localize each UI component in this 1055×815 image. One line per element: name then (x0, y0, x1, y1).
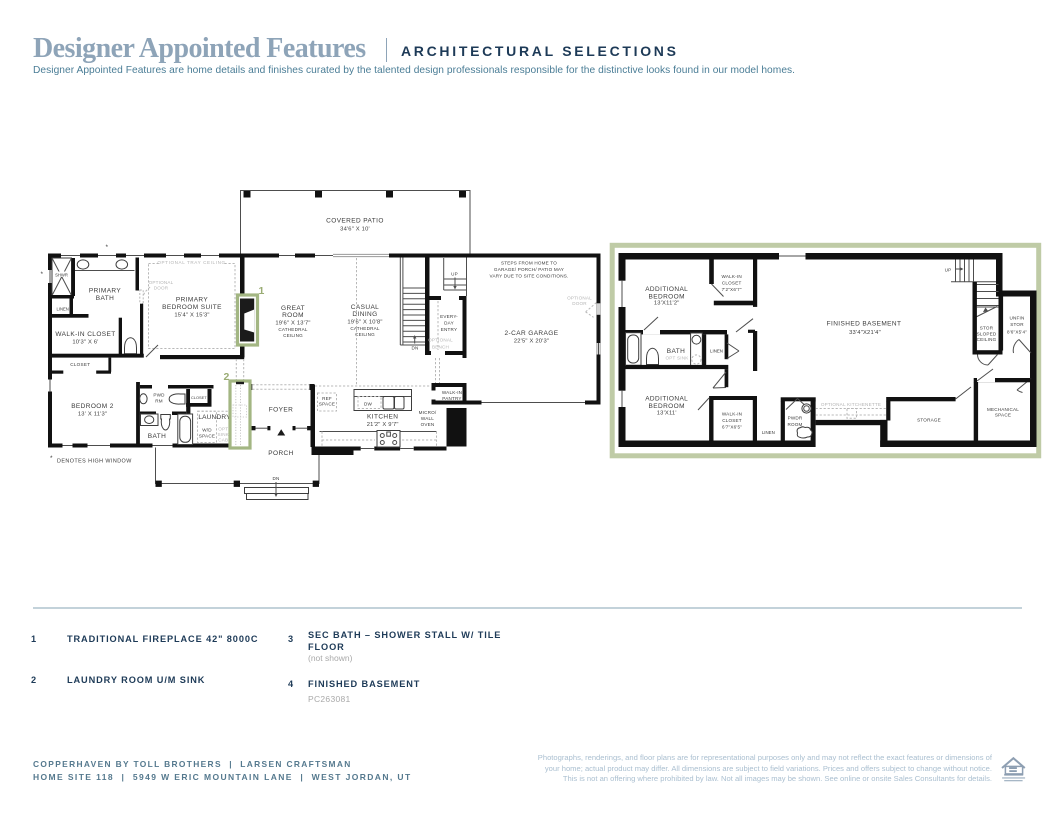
svg-text:CATHEDRAL: CATHEDRAL (350, 326, 380, 331)
svg-text:CLOSET: CLOSET (191, 395, 207, 400)
svg-text:OPT: OPT (218, 427, 228, 432)
svg-text:OPTIONAL: OPTIONAL (149, 280, 174, 285)
svg-text:SPACE: SPACE (199, 434, 215, 439)
svg-text:13'X11'2": 13'X11'2" (654, 301, 680, 307)
svg-text:PRIMARY: PRIMARY (176, 297, 209, 304)
svg-text:MECHANICAL: MECHANICAL (987, 407, 1019, 412)
svg-text:OPT SINK: OPT SINK (666, 356, 690, 361)
svg-text:ROOM: ROOM (787, 422, 802, 427)
svg-text:STORAGE: STORAGE (917, 418, 941, 423)
svg-text:19'6" X 13'7": 19'6" X 13'7" (275, 321, 310, 327)
svg-text:BATH: BATH (96, 295, 114, 302)
svg-text:8'6"X5'4": 8'6"X5'4" (1007, 330, 1027, 335)
svg-text:CEILING: CEILING (283, 333, 303, 338)
svg-text:WALK-IN: WALK-IN (442, 390, 462, 395)
svg-text:KITCHEN: KITCHEN (367, 414, 398, 421)
svg-text:VARY DUE TO SITE CONDITIONS.: VARY DUE TO SITE CONDITIONS. (490, 274, 569, 279)
svg-text:SHWR: SHWR (55, 273, 68, 278)
svg-text:FOYER: FOYER (269, 407, 293, 414)
svg-text:LINEN: LINEN (762, 430, 775, 435)
svg-text:1: 1 (259, 285, 265, 297)
svg-text:SPACE: SPACE (995, 413, 1011, 418)
svg-text:WALK-IN CLOSET: WALK-IN CLOSET (55, 331, 115, 338)
svg-text:FINISHED BASEMENT: FINISHED BASEMENT (827, 321, 902, 328)
svg-text:LAUNDRY: LAUNDRY (198, 414, 231, 421)
svg-text:MICRO/: MICRO/ (419, 410, 437, 415)
svg-text:ROOM: ROOM (282, 312, 304, 319)
svg-text:15'4" X 15'3": 15'4" X 15'3" (174, 313, 209, 319)
svg-text:2-CAR GARAGE: 2-CAR GARAGE (505, 330, 559, 337)
svg-text:13'X11': 13'X11' (657, 411, 677, 417)
svg-text:COVERED PATIO: COVERED PATIO (326, 218, 384, 225)
svg-text:PORCH: PORCH (268, 450, 293, 457)
svg-text:SPACE: SPACE (319, 402, 335, 407)
svg-text:CLOSET: CLOSET (722, 418, 742, 423)
svg-text:ADDITIONAL: ADDITIONAL (645, 286, 688, 293)
svg-text:*: * (106, 244, 109, 251)
svg-text:BEDROOM 2: BEDROOM 2 (71, 403, 114, 410)
svg-text:BENCH: BENCH (432, 345, 449, 350)
svg-text:DN: DN (272, 476, 279, 481)
svg-text:CEILING: CEILING (355, 332, 375, 337)
svg-text:UP: UP (945, 268, 952, 273)
svg-text:SLOPED: SLOPED (977, 331, 997, 336)
svg-text:6'7"X6'5": 6'7"X6'5" (722, 425, 742, 430)
svg-text:22'5" X 20'3": 22'5" X 20'3" (514, 339, 549, 345)
svg-text:SINK: SINK (218, 432, 230, 437)
svg-text:DAY: DAY (444, 321, 454, 326)
svg-text:ADDITIONAL: ADDITIONAL (645, 396, 688, 403)
svg-text:CATHEDRAL: CATHEDRAL (278, 327, 308, 332)
svg-text:BEDROOM SUITE: BEDROOM SUITE (162, 304, 222, 311)
svg-text:PRIMARY: PRIMARY (89, 288, 122, 295)
svg-text:WALK-IN: WALK-IN (722, 274, 742, 279)
svg-text:DENOTES HIGH WINDOW: DENOTES HIGH WINDOW (57, 459, 132, 465)
svg-text:OPTIONAL: OPTIONAL (567, 296, 592, 301)
svg-text:OVEN: OVEN (421, 422, 435, 427)
svg-text:DOOR: DOOR (154, 286, 169, 291)
svg-text:10'3" X 6': 10'3" X 6' (72, 340, 98, 346)
svg-text:21'2" X 9'7": 21'2" X 9'7" (367, 422, 399, 428)
svg-text:2: 2 (224, 371, 230, 383)
svg-text:GARAGE/ PORCH/ PATIO MAY: GARAGE/ PORCH/ PATIO MAY (494, 267, 564, 272)
svg-text:7'2"X6'7": 7'2"X6'7" (722, 287, 742, 292)
svg-text:BATH: BATH (148, 433, 166, 440)
svg-text:CLOSET: CLOSET (70, 362, 90, 367)
svg-text:34'6" X 10': 34'6" X 10' (340, 227, 370, 233)
svg-text:CEILING: CEILING (977, 337, 997, 342)
svg-text:EVERY-: EVERY- (440, 314, 458, 319)
svg-text:REF: REF (322, 396, 332, 401)
svg-text:OPTIONAL KITCHENETTE: OPTIONAL KITCHENETTE (821, 402, 881, 407)
svg-text:OPTIONAL TRAY CEILING: OPTIONAL TRAY CEILING (157, 260, 225, 265)
svg-text:STOR: STOR (1010, 322, 1024, 327)
svg-text:STOR: STOR (980, 326, 994, 331)
svg-text:ENTRY: ENTRY (441, 327, 458, 332)
svg-text:OPTIONAL: OPTIONAL (428, 338, 453, 343)
svg-text:WALL: WALL (421, 416, 434, 421)
svg-text:33'4"X21'4": 33'4"X21'4" (849, 330, 881, 336)
svg-text:UNFIN: UNFIN (1009, 316, 1024, 321)
svg-text:PANTRY: PANTRY (442, 396, 461, 401)
svg-text:W/D: W/D (202, 428, 212, 433)
svg-text:WALK-IN: WALK-IN (722, 412, 742, 417)
svg-text:UP: UP (451, 272, 458, 277)
svg-text:13' X 11'3": 13' X 11'3" (78, 412, 107, 418)
svg-text:BEDROOM: BEDROOM (649, 403, 685, 410)
svg-text:CASUAL: CASUAL (351, 304, 379, 311)
svg-text:19'6" X 10'8": 19'6" X 10'8" (347, 320, 382, 326)
svg-text:GREAT: GREAT (281, 305, 305, 312)
svg-text:*: * (41, 271, 44, 278)
svg-text:PWDR: PWDR (788, 416, 803, 421)
svg-text:DOOR: DOOR (572, 301, 587, 306)
svg-text:STEPS FROM HOME TO: STEPS FROM HOME TO (501, 261, 557, 266)
svg-text:CAB: CAB (218, 438, 228, 443)
svg-text:DW: DW (364, 402, 373, 407)
svg-text:CLOSET: CLOSET (722, 281, 742, 286)
svg-text:LINEN: LINEN (57, 307, 69, 312)
svg-text:*: * (50, 455, 53, 462)
svg-text:BATH: BATH (667, 348, 685, 355)
svg-text:RM: RM (155, 399, 163, 404)
svg-text:PWD: PWD (153, 393, 165, 398)
svg-text:BEDROOM: BEDROOM (649, 294, 685, 301)
svg-text:LINEN: LINEN (710, 349, 723, 354)
svg-text:DN: DN (411, 346, 418, 351)
